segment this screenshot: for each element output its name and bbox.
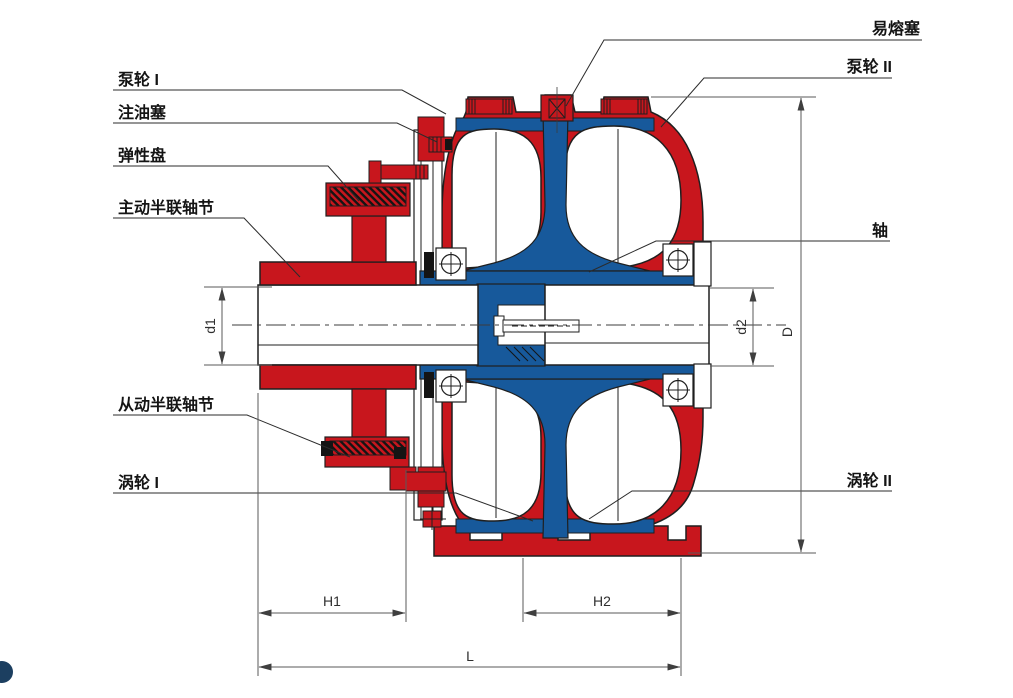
coupling-diagram: 泵轮 I 注油塞 弹性盘 主动半联轴节 从动半联轴节 涡轮 I 易熔塞 泵轮 I… (0, 0, 1013, 698)
label-elastic-disc: 弹性盘 (118, 146, 166, 165)
label-turbine-1: 涡轮 I (118, 473, 159, 492)
dim-d2-text: d2 (733, 319, 749, 335)
oil-plug-part (429, 137, 452, 152)
seal-bottom-left (424, 372, 434, 398)
bearing-cover-right-bottom (694, 364, 711, 408)
bearing-bottom-left (436, 370, 466, 402)
bearing-top-right (663, 244, 693, 276)
dim-H2-text: H2 (593, 593, 611, 609)
dim-D-text: D (779, 327, 795, 337)
label-turbine-2: 涡轮 II (847, 471, 892, 490)
bearing-bottom-right (663, 374, 693, 406)
driving-hub-top (260, 262, 416, 285)
casing-bolt-right-group (601, 99, 647, 114)
bearing-top-left (436, 248, 466, 280)
leader-oil-fill-plug (113, 123, 437, 142)
page-corner-dot (0, 661, 13, 683)
dim-H1-text: H1 (323, 593, 341, 609)
bearing-cover-right-top (694, 242, 711, 286)
page: 泵轮 I 注油塞 弹性盘 主动半联轴节 从动半联轴节 涡轮 I 易熔塞 泵轮 I… (0, 0, 1013, 698)
driving-hub-bottom (260, 365, 416, 389)
label-fusible-plug: 易熔塞 (872, 19, 921, 38)
leader-elastic-disc (113, 166, 359, 201)
label-oil-fill-plug: 注油塞 (118, 103, 167, 122)
elastic-disc-band-top (330, 187, 406, 206)
ibeam-web-bottom (352, 389, 386, 437)
ibeam-web-top (352, 216, 386, 262)
casing-step-bottom-2 (406, 472, 446, 491)
label-pump-wheel-1: 泵轮 I (117, 70, 159, 89)
label-driven-half-coupling: 从动半联轴节 (118, 395, 214, 414)
leader-driven-half-coupling (113, 415, 350, 457)
label-pump-wheel-2: 泵轮 II (846, 57, 892, 76)
label-driving-half-coupling: 主动半联轴节 (118, 198, 214, 217)
leader-pump-wheel-2 (661, 78, 892, 127)
dim-d1-text: d1 (202, 318, 218, 334)
disc-bolt-bottom-left (321, 441, 333, 456)
seal-top-left (424, 252, 434, 278)
disc-bolt-bottom-right (394, 447, 406, 459)
casing-bolt-left-group (466, 99, 512, 114)
label-shaft: 轴 (872, 221, 888, 240)
dim-L-text: L (466, 648, 474, 664)
